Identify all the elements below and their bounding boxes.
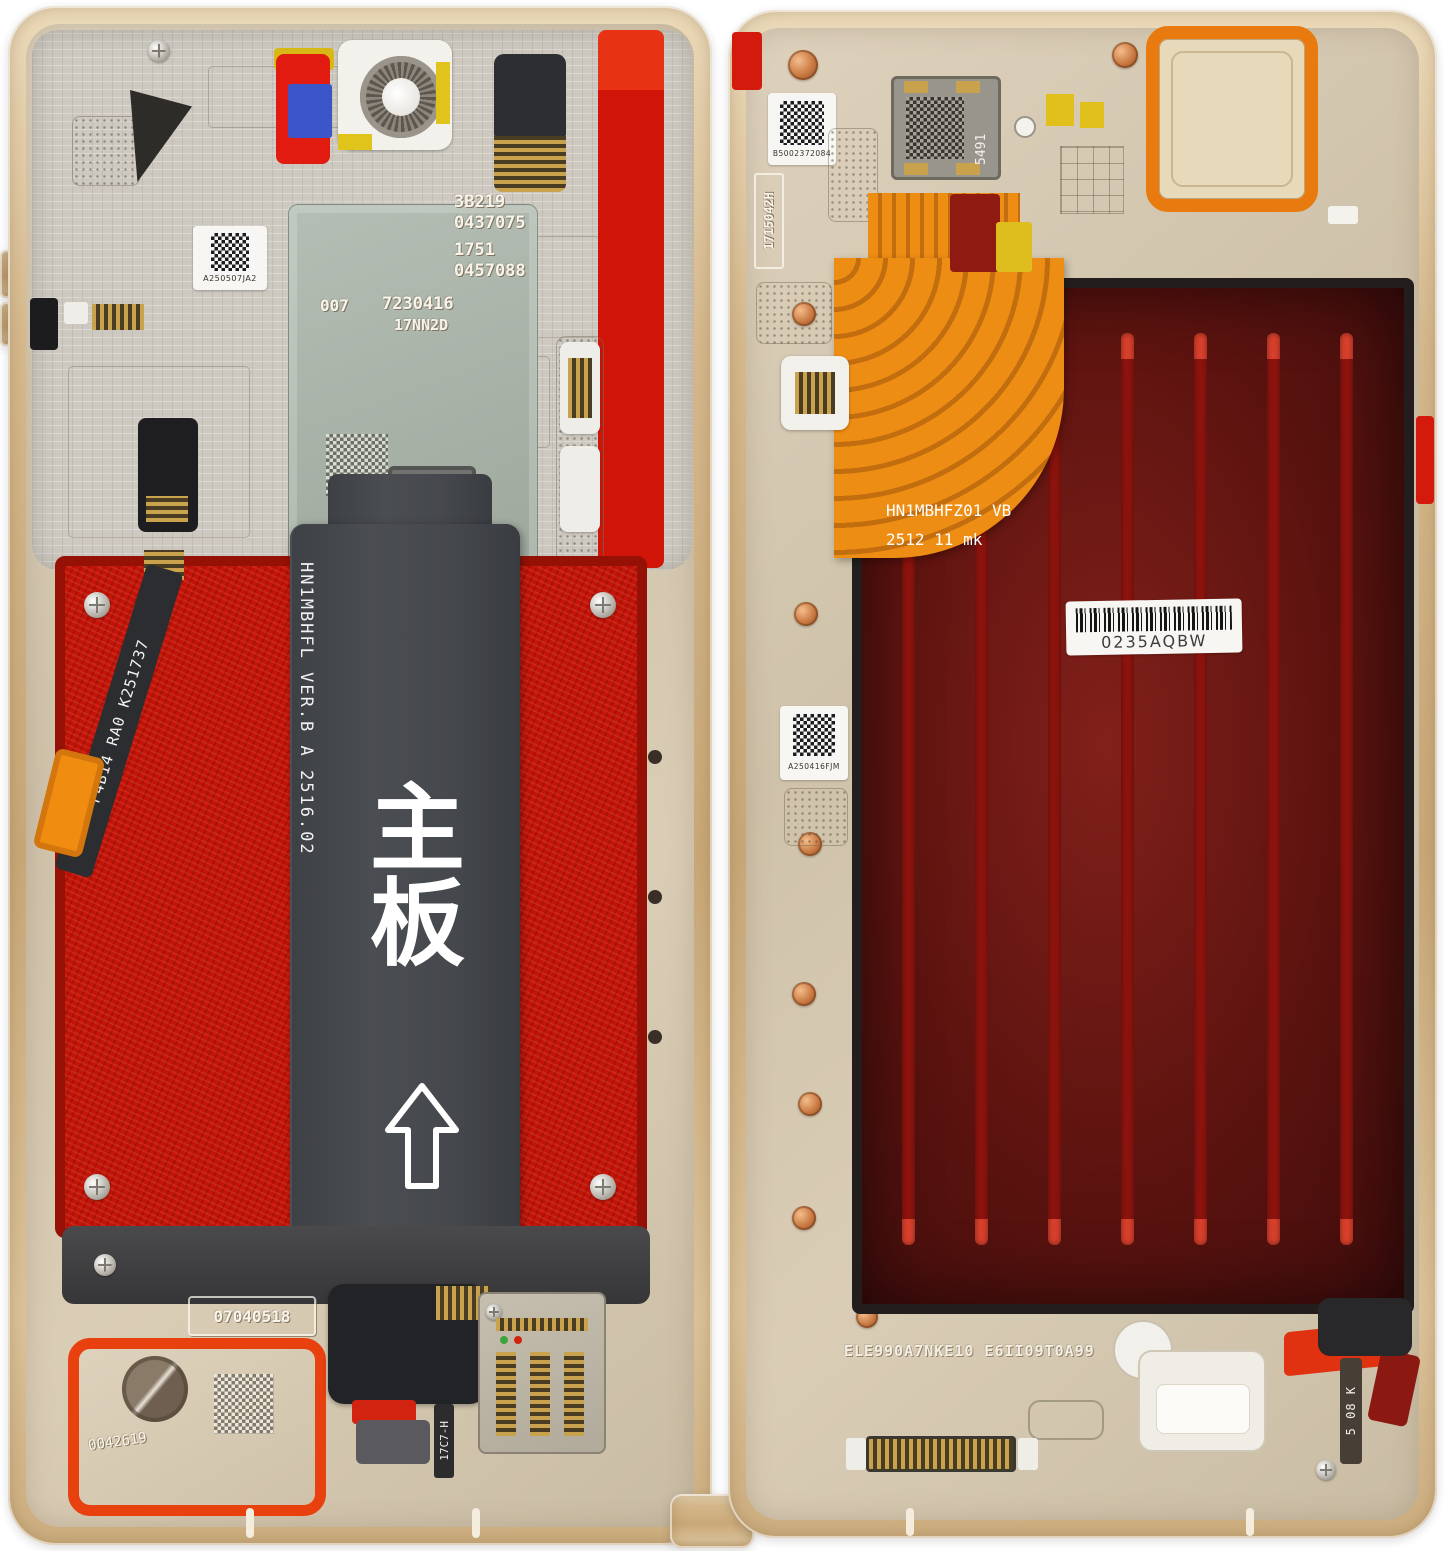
etched-code: 1715042H	[762, 192, 776, 250]
earpiece-speaker-chip: 5491	[891, 76, 1001, 180]
screw-copper	[792, 1206, 816, 1230]
etched-code: 07040518	[213, 1307, 290, 1326]
qr-label-text: A250507JA2	[193, 274, 267, 283]
flex-print-line1: HN1MBHFZ01 VB	[886, 496, 1011, 525]
small-pad	[846, 1438, 866, 1470]
panel-stripe	[1267, 333, 1280, 1245]
flex-connector-contacts	[494, 136, 566, 192]
indicator-dot	[514, 1336, 522, 1344]
screw-copper	[1112, 42, 1138, 68]
screw	[94, 1254, 116, 1276]
etched-code-block: 3B219 0437075	[454, 192, 526, 234]
flex-print-line2: 2512 11 mk	[886, 525, 1011, 554]
antenna-mesh-pad	[72, 116, 140, 186]
screw	[84, 1174, 110, 1200]
etched-line: 0437075	[454, 213, 526, 234]
yellow-sticker	[996, 222, 1032, 272]
flex-code-text: 17C7-H	[438, 1421, 451, 1461]
left-frame-half: A250507JA2 3B219 0437075 1751 0457088 00…	[8, 6, 712, 1545]
barcode-text: 0235AQBW	[1066, 630, 1242, 652]
sim-top-contacts	[496, 1318, 588, 1331]
board-connector-pad	[560, 446, 600, 532]
white-sticker	[1328, 206, 1358, 224]
chip-code: 5491	[974, 93, 989, 165]
main-board-chinese-label: 主板	[360, 778, 457, 1018]
qr-label-left-top: A250507JA2	[193, 226, 267, 290]
qr-label-right-mid: A250416FJM	[780, 706, 848, 780]
screw	[84, 592, 110, 618]
module-window	[1156, 1384, 1250, 1434]
connector-contacts	[795, 372, 835, 414]
screw-copper	[788, 50, 818, 80]
sim-spring-contacts	[564, 1352, 584, 1436]
indicator-dot	[500, 1336, 508, 1344]
red-adhesive-strip	[598, 30, 664, 568]
etched-code: 007	[320, 296, 349, 315]
barcode	[1076, 606, 1232, 633]
dark-red-sticker	[950, 194, 1000, 272]
pcb-side-code: 5 08 K	[1344, 1386, 1358, 1435]
qr-label-text: A250416FJM	[780, 762, 848, 771]
flex-connector-housing	[494, 54, 566, 138]
etched-code-box: 07040518	[188, 1296, 316, 1336]
etched-code: 7230416	[382, 294, 454, 314]
etched-slot	[1028, 1400, 1104, 1440]
white-module	[1138, 1350, 1266, 1452]
solder-pad	[956, 81, 980, 93]
screw-hole	[648, 750, 662, 764]
panel-stripe	[1340, 333, 1353, 1245]
panel-stripe	[1121, 333, 1134, 1245]
top-speaker-gasket	[1146, 26, 1318, 212]
etched-code-block: 1751 0457088	[454, 240, 526, 282]
qr-label-text: B5002372084	[768, 149, 836, 158]
yellow-tape	[1046, 94, 1074, 126]
panel-stripe	[1048, 333, 1061, 1245]
antenna-slit	[472, 1508, 480, 1538]
yellow-tape	[436, 62, 450, 124]
etched-qr-on-speaker	[214, 1374, 274, 1434]
etched-grid	[1060, 146, 1124, 214]
yellow-tape	[1080, 102, 1104, 128]
panel-stripe	[1194, 333, 1207, 1245]
yellow-tape	[338, 134, 372, 150]
main-flex-code: HN1MBHFL VER.B A 2516.02	[296, 562, 316, 1142]
red-tape	[732, 32, 762, 90]
connector-contacts	[568, 358, 592, 418]
right-frame-half: B5002372084 1715042H 5491	[728, 10, 1437, 1538]
screw-copper	[794, 602, 818, 626]
antenna-slit	[1246, 1508, 1254, 1536]
pcb-edge-strip: 5 08 K	[1340, 1358, 1362, 1464]
qr-code	[780, 101, 824, 145]
etched-code: 17NN2D	[394, 316, 448, 334]
screw-hole	[648, 1030, 662, 1044]
small-pad	[64, 302, 88, 324]
up-arrow-icon	[382, 1082, 462, 1190]
etched-datamatrix	[906, 97, 964, 159]
bottom-connector-contacts	[866, 1436, 1016, 1472]
etched-line: 1751	[454, 240, 526, 261]
speaker-module-gasket	[68, 1338, 326, 1516]
etched-line: 3B219	[454, 192, 526, 213]
blue-sticker	[288, 84, 332, 138]
gold-contacts	[146, 496, 188, 522]
perforated-pad	[784, 788, 848, 846]
sim-card-reader	[478, 1292, 606, 1454]
solder-pad	[904, 81, 928, 93]
screw	[148, 40, 170, 62]
sim-spring-contacts	[496, 1352, 516, 1436]
screw-copper	[792, 302, 816, 326]
camera-lens-aperture	[382, 78, 420, 116]
mic-hole	[1014, 116, 1036, 138]
photo-stage: A250507JA2 3B219 0437075 1751 0457088 00…	[0, 0, 1445, 1551]
screw-copper	[792, 982, 816, 1006]
solder-pad	[904, 163, 928, 175]
speaker-port-hole	[122, 1356, 188, 1422]
small-pad	[1018, 1438, 1038, 1470]
gold-contacts	[92, 304, 144, 330]
antenna-slit	[906, 1508, 914, 1536]
screw	[1316, 1460, 1336, 1480]
qr-label-right-top: B5002372084	[768, 93, 836, 165]
screw-hole	[648, 890, 662, 904]
screw-copper	[798, 1092, 822, 1116]
black-module	[1318, 1298, 1412, 1356]
etched-line: 0457088	[454, 261, 526, 282]
orange-flex-print: HN1MBHFZ01 VB 2512 11 mk	[886, 496, 1011, 554]
small-flex-strip: 17C7-H	[434, 1404, 454, 1478]
qr-code	[793, 714, 835, 756]
antenna-slit	[246, 1508, 254, 1538]
screw	[590, 1174, 616, 1200]
side-key-flex	[30, 298, 58, 350]
barcode-label: 0235AQBW	[1066, 598, 1243, 655]
gray-flex	[356, 1420, 430, 1464]
sim-spring-contacts	[530, 1352, 550, 1436]
speaker-inner-outline	[1171, 51, 1293, 187]
red-tape	[1416, 416, 1434, 504]
qr-code	[211, 233, 249, 271]
screw	[590, 592, 616, 618]
etched-code-box: 1715042H	[754, 173, 784, 269]
